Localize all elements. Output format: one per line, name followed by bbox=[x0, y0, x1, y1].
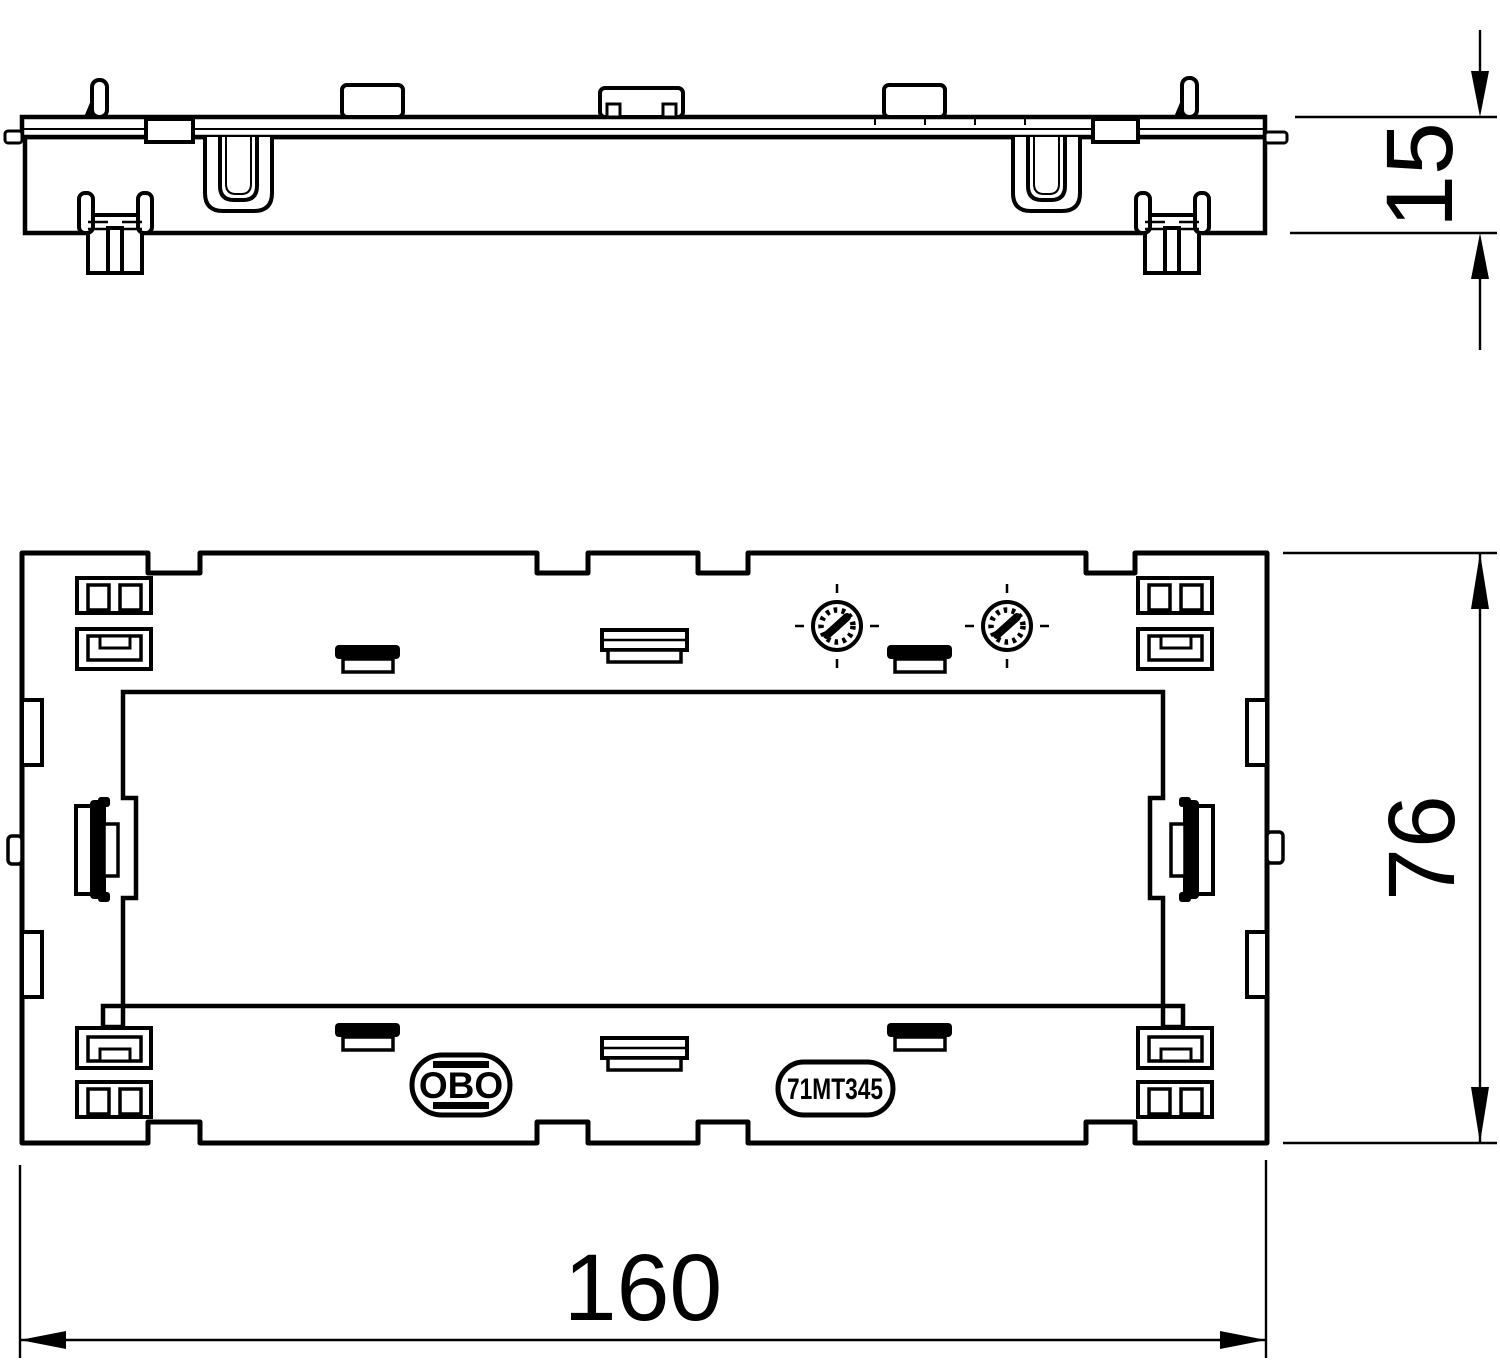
side-right-nub bbox=[1265, 132, 1287, 143]
dimension-76: 76 bbox=[1283, 553, 1497, 1143]
dim-15-value: 15 bbox=[1367, 122, 1473, 228]
front-central-opening bbox=[103, 692, 1183, 1027]
dim-160-arrow-left-icon bbox=[20, 1331, 66, 1349]
clip-top-center bbox=[602, 630, 687, 662]
front-view: OBO 71MT345 bbox=[8, 553, 1283, 1143]
dimension-15: 15 bbox=[1290, 30, 1497, 350]
edge-pocket-left-upper bbox=[22, 700, 42, 765]
corner-window-bottom-right bbox=[1138, 1082, 1212, 1117]
edge-pocket-right-lower bbox=[1247, 932, 1267, 997]
side-pin-right bbox=[1174, 78, 1197, 117]
dim-15-arrow-top-icon bbox=[1471, 71, 1489, 117]
dim-160-value: 160 bbox=[564, 1235, 723, 1341]
part-number-badge: 71MT345 bbox=[778, 1062, 893, 1115]
side-bump-right bbox=[1093, 119, 1138, 142]
side-clip-right bbox=[1013, 137, 1080, 211]
dim-160-arrow-right-icon bbox=[1220, 1331, 1266, 1349]
side-view bbox=[5, 78, 1287, 273]
edge-pocket-left-lower bbox=[22, 932, 42, 997]
drawing-canvas: 15 bbox=[0, 0, 1500, 1360]
clip-bottom-right bbox=[887, 1023, 952, 1050]
side-tab-center bbox=[600, 88, 683, 117]
corner-window-top-left bbox=[77, 578, 151, 613]
side-clip-left bbox=[205, 137, 272, 211]
clip-top-right bbox=[887, 645, 952, 672]
dim-76-arrow-bottom-icon bbox=[1471, 1087, 1489, 1143]
side-bump-left bbox=[146, 119, 193, 142]
part-number-text: 71MT345 bbox=[787, 1073, 883, 1106]
outer-nub-left bbox=[8, 836, 22, 864]
edge-pocket-right-upper bbox=[1247, 700, 1267, 765]
side-tab-left bbox=[342, 85, 403, 117]
brand-badge: OBO bbox=[412, 1055, 510, 1115]
dimension-160: 160 bbox=[20, 1160, 1266, 1358]
clip-bottom-center bbox=[602, 1038, 687, 1070]
clip-bottom-left bbox=[335, 1023, 400, 1050]
corner-window-bottom-left bbox=[77, 1082, 151, 1117]
corner-channel-bottom-left bbox=[77, 1028, 151, 1068]
dim-76-value: 76 bbox=[1369, 795, 1475, 901]
brand-text: OBO bbox=[419, 1065, 503, 1106]
corner-channel-bottom-right bbox=[1138, 1028, 1212, 1068]
outer-nub-right bbox=[1267, 832, 1283, 863]
corner-window-top-right bbox=[1138, 578, 1212, 613]
dim-76-arrow-top-icon bbox=[1471, 553, 1489, 609]
corner-channel-top-right bbox=[1138, 629, 1212, 669]
dim-15-arrow-bottom-icon bbox=[1471, 233, 1489, 279]
side-pin-left bbox=[84, 80, 107, 117]
side-rail bbox=[22, 117, 1265, 137]
mounting-frame-drawing: 15 bbox=[0, 0, 1500, 1360]
side-left-nub bbox=[5, 131, 22, 143]
clip-top-left bbox=[335, 645, 400, 672]
side-tab-right bbox=[884, 85, 945, 117]
corner-channel-top-left bbox=[77, 629, 151, 669]
